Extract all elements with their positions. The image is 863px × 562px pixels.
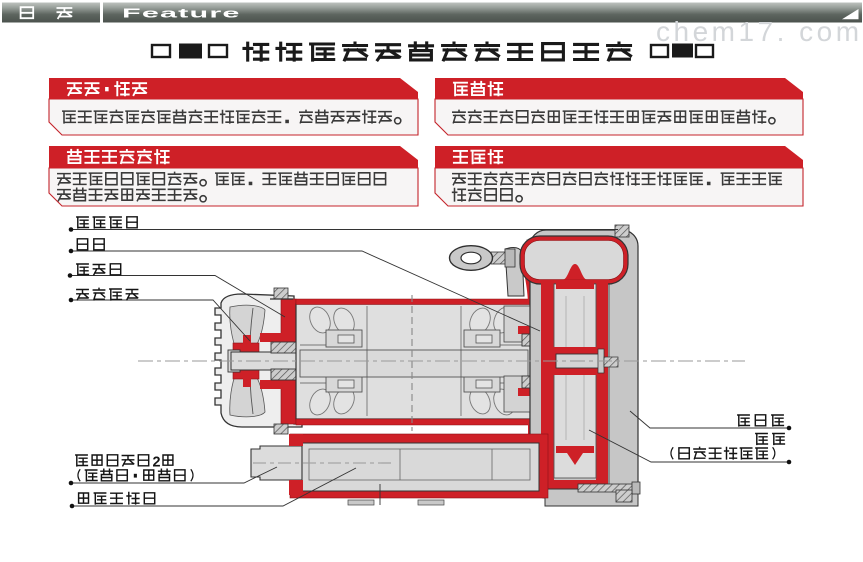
svg-text:chem17. com: chem17. com <box>656 16 863 47</box>
svg-text:2: 2 <box>153 455 161 471</box>
svg-text:Feature: Feature <box>122 6 241 20</box>
